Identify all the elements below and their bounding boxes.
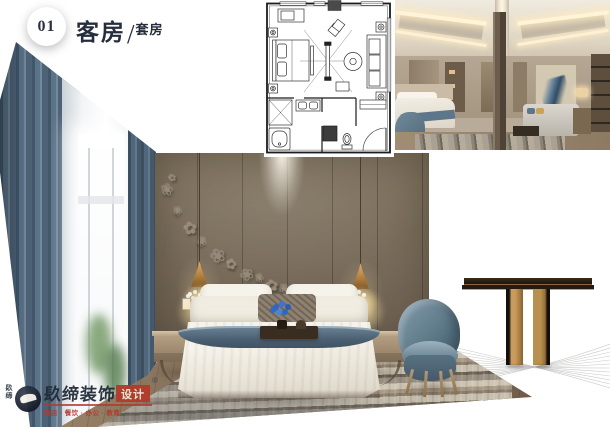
photo-gold-lamp [576, 88, 588, 97]
accent-lumbar-pillow [258, 294, 316, 322]
flower-relief-icon: ✿ [168, 172, 178, 185]
watermark-tagline: 酒店 · 餐饮 · 办公 · 教育 [44, 407, 120, 417]
photo-niche-light [449, 70, 455, 74]
watermark-side-text: 镹缔 [4, 384, 14, 400]
console-leg-shadow [506, 365, 524, 368]
page-title-main: 客房 [76, 20, 126, 45]
photo-sofa-pillow-gold [536, 108, 544, 114]
photo-sideboard [573, 108, 591, 134]
page-title: 客房/套房 [76, 13, 164, 50]
page-index-badge: 01 [27, 7, 66, 46]
plan-living-furniture [328, 19, 386, 102]
ceiling-spotlight-glow [252, 153, 312, 235]
company-watermark: 镹缔 镹缔装饰 设计 ® 酒店 · 餐饮 · 办公 · 教育 [2, 374, 182, 426]
photo-sofa-pillow-blue [527, 108, 535, 114]
photo-coffee-table [513, 126, 539, 136]
page-title-sub: 套房 [136, 22, 164, 37]
photo-rug [415, 134, 565, 150]
plan-bedroom-furniture [269, 9, 314, 93]
plan-entry-door-block [328, 1, 341, 11]
flower-relief-icon: ✿ [183, 218, 199, 240]
console-leg-shadow [533, 365, 551, 368]
console-leg-right [533, 289, 550, 365]
flower-relief-icon: ✿ [224, 256, 238, 274]
armchair-leg [423, 371, 428, 397]
console-leg-left [506, 289, 523, 365]
breakfast-tray [260, 326, 318, 339]
blue-flower-bouquet [273, 304, 279, 310]
watermark-seal: 设计 [116, 385, 150, 402]
plan-bathroom-fixtures [269, 100, 386, 150]
suite-floor-plan [264, 0, 394, 157]
pendant-cord-left [199, 153, 200, 263]
console-table-product [462, 270, 596, 374]
page-title-separator: / [127, 19, 135, 49]
floor-plan-drawing [264, 0, 394, 157]
teapot [296, 320, 306, 329]
flower-relief-icon: ❀ [171, 204, 185, 220]
blue-armchair [394, 293, 466, 395]
bed [176, 278, 382, 400]
suite-reference-photo [395, 0, 610, 150]
bedroom-render-curtain-region [0, 38, 156, 428]
pendant-cord-right [360, 153, 361, 265]
page-index-number: 01 [38, 18, 56, 36]
registered-mark-icon: ® [152, 376, 158, 385]
watermark-underline [44, 404, 152, 406]
window-transom-bar [78, 196, 124, 204]
presentation-board: ❀ ✿ ❀ ✿ ❀ ❀ ✿ ❀ ❀ ✿ ❀ ❀ ✿ ❀ [0, 0, 610, 430]
watermark-brand-name: 镹缔装饰 [43, 380, 117, 405]
photo-mirror-panel [481, 62, 493, 112]
plan-entry-door-arc [363, 128, 386, 151]
bed-base-shadow [178, 390, 380, 398]
bouquet-vase [277, 320, 287, 329]
console-top-step [462, 285, 594, 289]
photo-pillar [493, 12, 506, 150]
